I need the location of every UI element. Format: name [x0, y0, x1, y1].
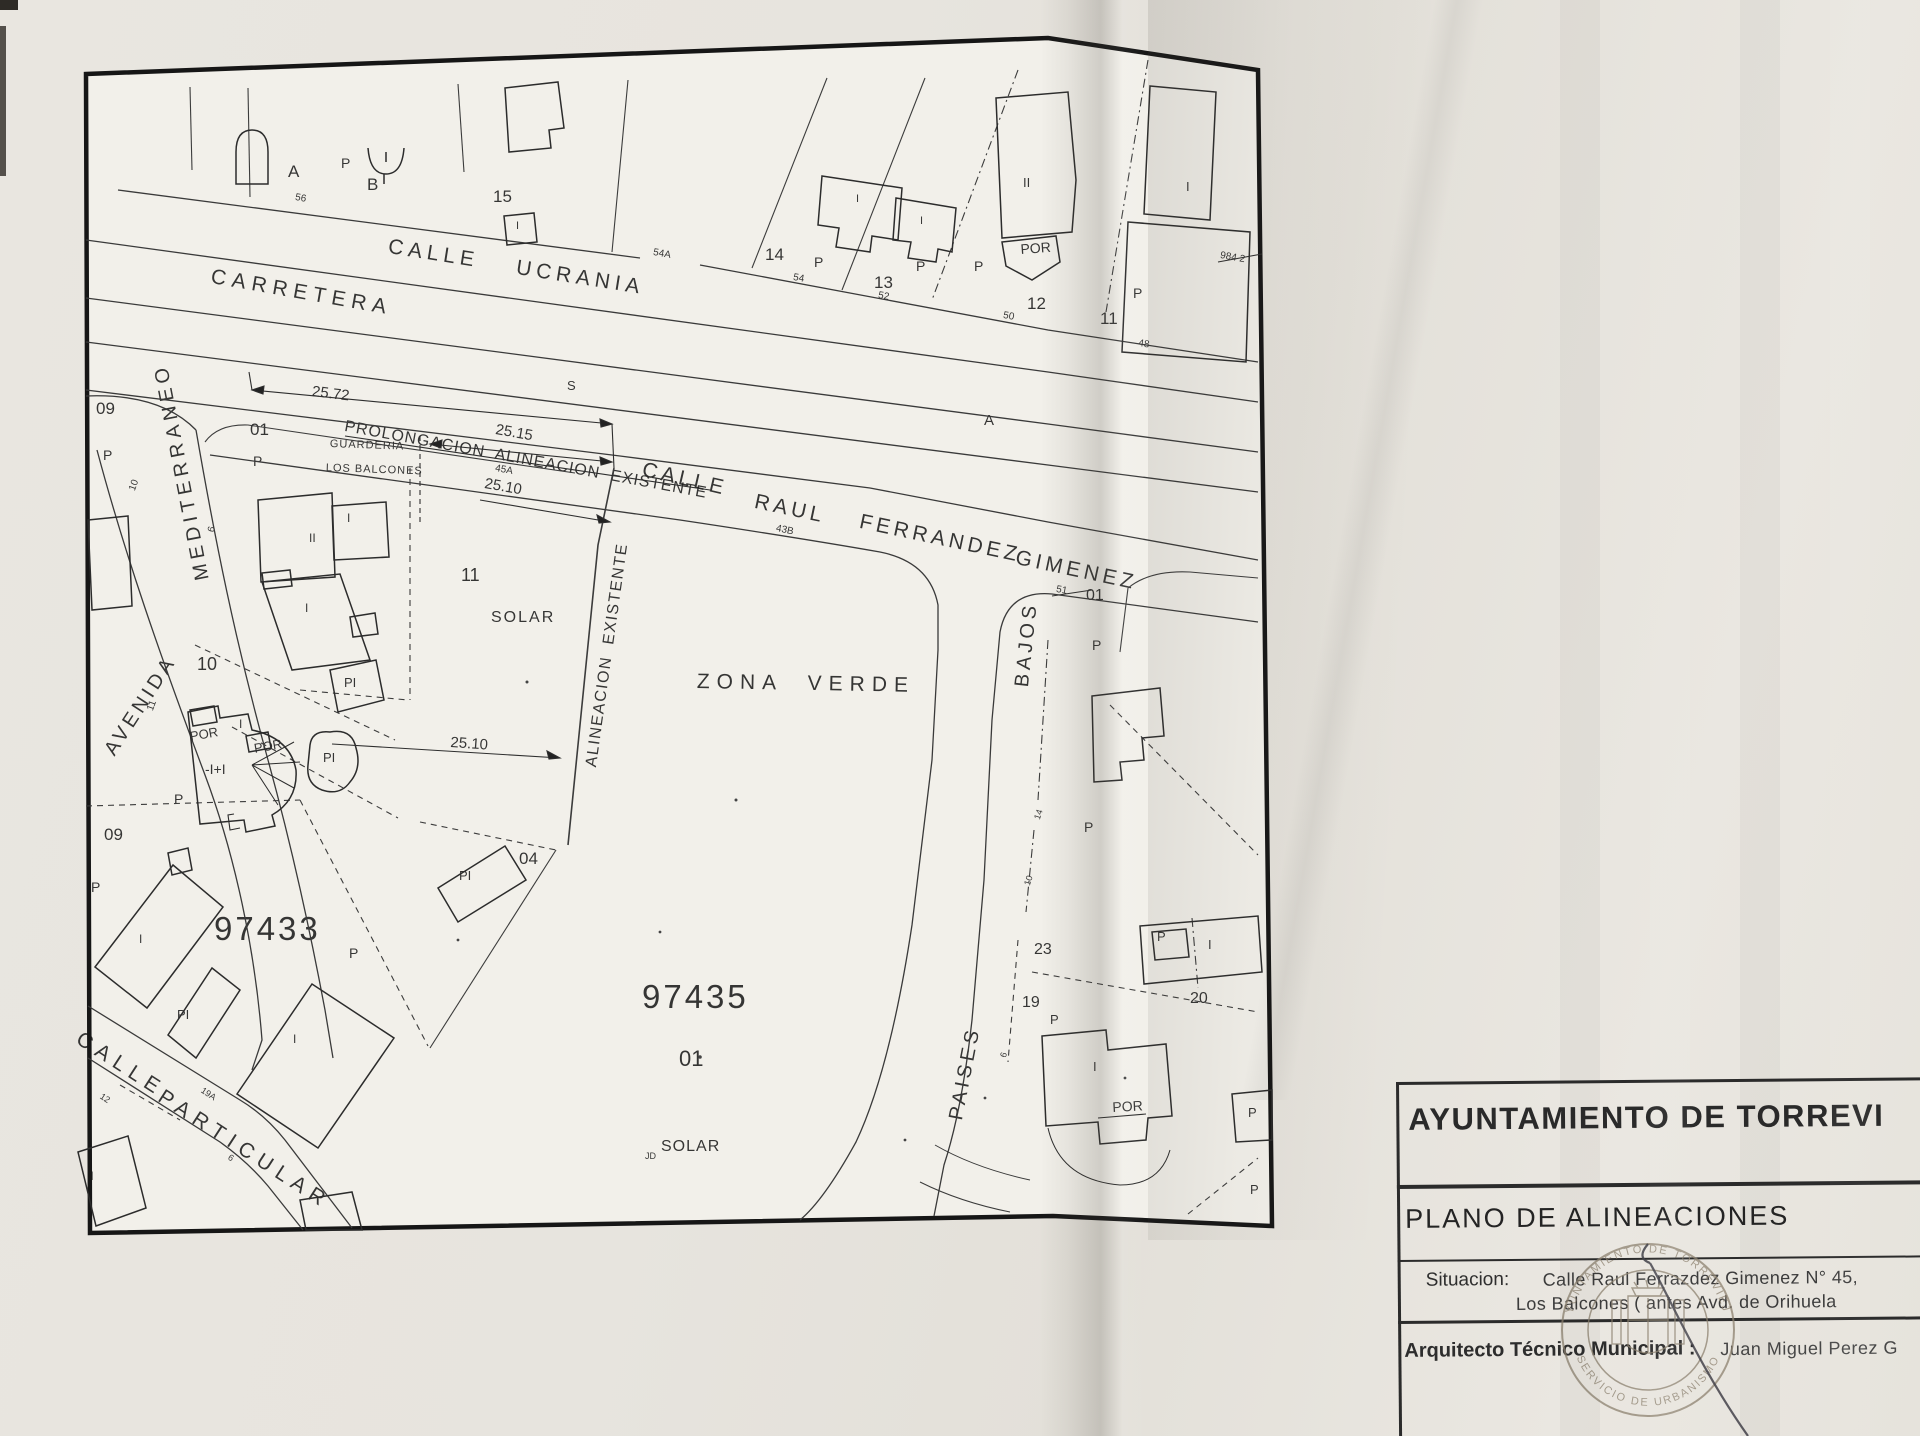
lot-23: 23 — [1034, 942, 1052, 958]
bld-pi-2: PI — [323, 751, 335, 764]
bld-p-frag: P — [1248, 1106, 1257, 1119]
lot-11-street: 11 — [1100, 310, 1118, 327]
label-p-14: P — [814, 255, 823, 269]
bld-ii-guard: II — [309, 532, 316, 544]
dim-25-72: 25.72 — [311, 384, 350, 403]
lot-19: 19 — [1022, 995, 1040, 1011]
tick-52: 52 — [877, 291, 890, 303]
lot-01-guarderia: 01 — [250, 421, 269, 438]
label-b-top: B — [367, 176, 378, 193]
letter-a: A — [984, 413, 994, 428]
bld-pi-04: PI — [459, 869, 471, 882]
bld-i-97433a: I — [139, 933, 142, 945]
label-p-13: P — [916, 259, 925, 273]
area-zona-verde: ZONA VERDE — [697, 671, 916, 696]
bld-i-19: I — [1093, 1060, 1097, 1073]
label-solar-97435: SOLAR — [661, 1139, 720, 1155]
label-solar-11: SOLAR — [491, 610, 555, 626]
bld-i-10: I — [239, 718, 242, 730]
street-carretera: CARRETERA — [209, 266, 393, 319]
label-p-11: P — [1133, 286, 1142, 300]
street-raul-raul: RAUL — [753, 491, 828, 527]
street-gimenez: GIMENEZ — [1014, 547, 1139, 593]
tick-43b: 43B — [775, 524, 794, 537]
bld-p-box: P — [1157, 930, 1166, 943]
tick-51: 51 — [1055, 585, 1068, 597]
label-a-top: A — [288, 163, 299, 180]
label-p-01right: P — [1092, 638, 1101, 652]
tick-50: 50 — [1002, 311, 1015, 323]
bld-i-guard1: I — [347, 512, 350, 524]
map-labels-layer: CARRETERACALLEUCRANIACALLERAULFERRANDEZG… — [0, 0, 1920, 1436]
bld-i-14b: I — [920, 216, 923, 227]
dim-25-15: 25.15 — [494, 422, 534, 443]
street-paises: PAISES — [946, 1025, 984, 1122]
label-p-01: P — [253, 454, 262, 468]
tick-6-pb: 6 — [999, 1051, 1009, 1059]
scan-edge-mark-2 — [0, 26, 6, 176]
lot-11-solar: 11 — [461, 566, 480, 584]
label-p-ab: P — [341, 156, 350, 170]
tick-54a: 54A — [652, 248, 671, 261]
street-ucrania-calle: CALLE — [387, 236, 481, 271]
street-avenida: AVENIDA — [101, 652, 180, 759]
tick-10-pb: 10 — [1023, 874, 1035, 886]
label-p-bottomright: P — [1250, 1183, 1259, 1196]
lot-14: 14 — [765, 246, 784, 263]
bld-por-19: POR — [1112, 1098, 1143, 1114]
label-p-09mid: P — [91, 880, 100, 894]
tick-14-pb: 14 — [1033, 808, 1045, 820]
label-p-right2: P — [1084, 820, 1093, 834]
tick-6-med: 6 — [207, 526, 218, 534]
bld-minus-i: -I+I — [205, 762, 226, 776]
tick-984-2: 984 2 — [1219, 251, 1245, 265]
tick-56: 56 — [294, 193, 307, 205]
bld-ii-bottomleft: II — [87, 1170, 94, 1182]
bld-pi-1: PI — [344, 676, 356, 689]
bld-i-topright: I — [1186, 180, 1190, 193]
lot-01-right: 01 — [1086, 588, 1104, 604]
ref-97433: 97433 — [214, 912, 321, 945]
street-raul-ferrandez: FERRANDEZ — [858, 511, 1023, 566]
bld-pi-97433: PI — [177, 1008, 189, 1021]
bld-por-2: POR — [253, 737, 283, 755]
street-particular-calle: CALLE — [73, 1028, 170, 1101]
street-bajos: BAJOS — [1012, 601, 1041, 688]
scan-edge-mark-1 — [0, 0, 18, 10]
bld-por-12: POR — [1020, 240, 1051, 256]
lot-10: 10 — [197, 655, 217, 673]
lot-09-mid: 09 — [104, 826, 123, 843]
label-los-balcones: LOS BALCONES — [326, 463, 423, 477]
label-p-09top: P — [103, 448, 112, 462]
label-alineacion-existente: ALINEACION EXISTENTE — [584, 542, 631, 768]
lot-15: 15 — [493, 188, 512, 205]
tick-12-part: 12 — [98, 1092, 111, 1105]
lot-97435-01: 01 — [679, 1048, 703, 1070]
bld-i-20: I — [1208, 938, 1212, 951]
lot-04: 04 — [519, 850, 538, 867]
lot-13: 13 — [874, 274, 893, 291]
tick-54: 54 — [792, 273, 805, 285]
bld-i-97433b: I — [293, 1033, 296, 1045]
tick-48: 48 — [1138, 339, 1150, 350]
street-ucrania-ucrania: UCRANIA — [515, 257, 646, 298]
lot-20: 20 — [1190, 991, 1208, 1007]
dim-25-10-bottom: 25.10 — [450, 735, 489, 753]
tick-6-part: 6 — [226, 1153, 235, 1163]
tick-45a: 45A — [494, 464, 513, 477]
lot-09-top: 09 — [96, 400, 115, 417]
street-mediterraneo: MEDITERRANEO — [151, 361, 213, 582]
scanned-paper-sheet: CARRETERACALLEUCRANIACALLERAULFERRANDEZG… — [0, 0, 1920, 1436]
bld-i-14a: I — [856, 194, 859, 205]
bld-por-1: POR — [189, 725, 219, 743]
label-p-97433: P — [349, 946, 358, 960]
street-particular-particular: PARTICULAR — [155, 1086, 335, 1213]
label-jd: JD — [645, 1152, 656, 1161]
label-p-19: P — [1050, 1013, 1059, 1026]
ref-97435: 97435 — [642, 980, 749, 1013]
tick-19a: 19A — [199, 1086, 217, 1102]
lot-12: 12 — [1027, 295, 1046, 312]
letter-s: S — [567, 379, 576, 392]
bld-i-guard2: I — [305, 602, 308, 614]
label-p-10: P — [174, 792, 183, 806]
bld-i-15: I — [516, 221, 519, 232]
label-guarderia: GUARDERIA — [330, 439, 405, 453]
label-p-12: P — [974, 259, 983, 273]
tick-10-med: 10 — [128, 479, 141, 493]
dim-25-10-top: 25.10 — [483, 476, 523, 497]
bld-ii-12: II — [1023, 176, 1030, 189]
